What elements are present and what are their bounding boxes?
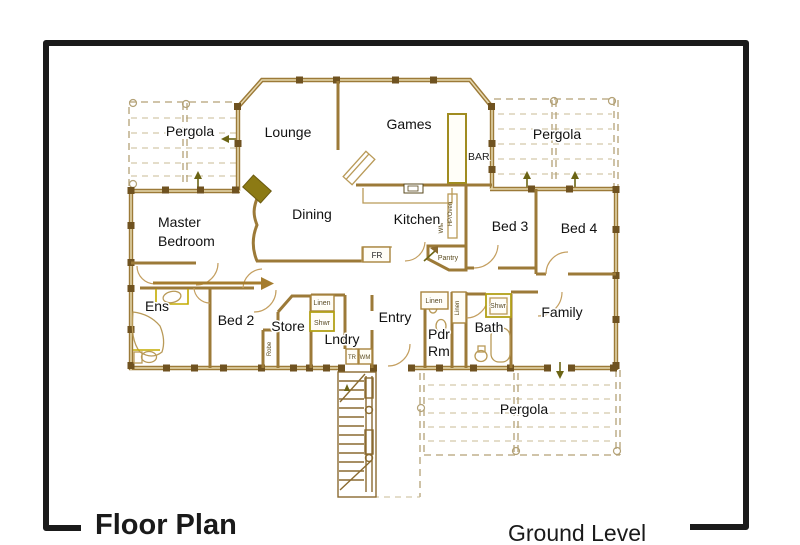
room-label-family: Family bbox=[541, 304, 582, 320]
shwr-bath-label: Shwr bbox=[490, 303, 507, 310]
pergola-top-left bbox=[129, 100, 237, 189]
entry-arrow-up-icon bbox=[194, 171, 202, 188]
room-label-kitchen: Kitchen bbox=[394, 211, 441, 227]
pantry-label: Pantry bbox=[438, 255, 459, 262]
kitchen-arrow-icon bbox=[424, 246, 438, 261]
room-label-pdr-1: Pdr bbox=[428, 326, 450, 342]
page-title: Floor Plan bbox=[95, 509, 237, 541]
room-label-bed2: Bed 2 bbox=[218, 312, 255, 328]
room-label-master-1: Master bbox=[158, 214, 201, 230]
entry-arrow-down-icon bbox=[556, 362, 564, 379]
pergola-bottom bbox=[340, 362, 621, 497]
bar-label: BAR bbox=[468, 151, 490, 163]
room-label-lounge: Lounge bbox=[265, 124, 312, 140]
floor-plan-drawing: BAR FR Pantry HP/Oven WM Linen Linen Lin… bbox=[0, 0, 800, 545]
room-label-bed3: Bed 3 bbox=[492, 218, 529, 234]
linen-label: Linen bbox=[425, 298, 442, 305]
level-title: Ground Level bbox=[508, 520, 646, 545]
room-label-entry: Entry bbox=[379, 309, 412, 325]
corner-cabinet bbox=[343, 151, 375, 184]
tr-label: TR bbox=[348, 355, 357, 361]
room-label-games: Games bbox=[386, 116, 431, 132]
room-label-master-2: Bedroom bbox=[158, 233, 215, 249]
linen-laundry-label: Linen bbox=[313, 300, 330, 307]
room-label-bed4: Bed 4 bbox=[561, 220, 598, 236]
wm-label: WM bbox=[360, 355, 371, 361]
outer-walls bbox=[128, 77, 620, 372]
shwr-laundry-label: Shwr bbox=[314, 320, 331, 327]
pergola-top-right bbox=[494, 98, 618, 189]
room-label-bath: Bath bbox=[475, 319, 504, 335]
room-label-pergola-tl: Pergola bbox=[166, 123, 214, 139]
toilet-icon bbox=[134, 352, 142, 363]
room-label-pergola-bottom: Pergola bbox=[500, 401, 548, 417]
bar-counter bbox=[448, 114, 466, 183]
room-label-lndry: Lndry bbox=[324, 331, 359, 347]
robe-label: Robe bbox=[267, 341, 273, 356]
room-label-dining: Dining bbox=[292, 206, 332, 222]
linen-tall-label: Linen bbox=[455, 301, 461, 316]
room-label-ens: Ens bbox=[145, 298, 169, 314]
wall-piers bbox=[128, 77, 620, 372]
fr-label: FR bbox=[372, 251, 383, 260]
hp-oven-label: HP/Oven bbox=[448, 202, 454, 226]
room-label-pergola-tr: Pergola bbox=[533, 126, 581, 142]
room-label-store: Store bbox=[271, 318, 305, 334]
entry-arrow-left-icon bbox=[221, 135, 236, 143]
stairs bbox=[338, 372, 376, 497]
floor-plan-page: BAR FR Pantry HP/Oven WM Linen Linen Lin… bbox=[0, 0, 800, 545]
kitchen-sink-icon bbox=[404, 184, 423, 193]
stairs-up-arrow-icon bbox=[344, 384, 350, 391]
room-label-pdr-2: Rm bbox=[428, 343, 450, 359]
fireplace-icon bbox=[243, 175, 272, 203]
